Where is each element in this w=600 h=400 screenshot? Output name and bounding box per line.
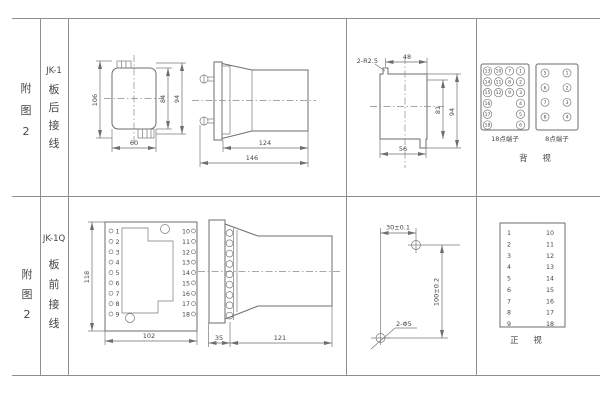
- terminal-number: 15: [182, 280, 190, 287]
- terminal-number: 16: [182, 291, 190, 298]
- rear-view-label: 背 视: [519, 153, 557, 164]
- terminal-number: 1: [519, 69, 522, 75]
- terminal-number: 11: [182, 239, 190, 246]
- figure-char: 附: [22, 267, 33, 281]
- drill-hole-bottom: [371, 328, 395, 349]
- terminal-number: 1: [116, 229, 120, 236]
- terminal-number: 3: [566, 100, 569, 106]
- terminal-number: 4: [116, 260, 120, 267]
- terminal-number: 13: [485, 69, 491, 75]
- block18-label: 18点端子: [491, 134, 519, 143]
- front-width-dim: 60: [130, 139, 138, 147]
- terminal-number: 2: [566, 85, 569, 91]
- figure-number: 2: [24, 308, 31, 321]
- terminal-number: 8: [544, 115, 547, 121]
- terminal-number: 14: [485, 79, 491, 85]
- terminal-number: 9: [507, 321, 511, 328]
- cutout-bottom-width-dim: 56: [399, 145, 407, 153]
- figure-char: 图: [22, 288, 33, 301]
- row2-figure-label: 附 图 2: [22, 267, 33, 321]
- terminal-number: 5: [544, 71, 547, 77]
- cutout-outer-height-dim: 94: [448, 108, 456, 116]
- wiring-char: 前: [49, 277, 60, 291]
- terminal-list-right-column: 10 11 12 13 14 15 16 17 18: [546, 230, 554, 328]
- terminal-block-8: 5 6 7 8 1 2 3 4: [541, 69, 571, 121]
- terminal-number: 17: [546, 310, 554, 317]
- front-height-inner-dim: 84: [159, 95, 167, 103]
- drill-hole-top: [408, 228, 460, 253]
- row2-model-label: JK-1Q 板 前 接 线: [42, 234, 66, 330]
- model-name: JK-1: [45, 66, 62, 76]
- jk1-front-view: 106 84 94 60: [91, 55, 186, 152]
- terminal-number: 8: [508, 79, 511, 85]
- wiring-char: 后: [49, 101, 60, 114]
- figure-number: 2: [23, 125, 30, 138]
- terminal-number: 3: [507, 253, 511, 260]
- terminal-number: 7: [508, 69, 511, 75]
- terminal-number: 10: [496, 69, 502, 75]
- terminal-number: 12: [546, 253, 554, 260]
- wiring-char: 板: [49, 82, 60, 96]
- block8-label: 8点端子: [545, 134, 569, 143]
- terminal-number: 7: [544, 100, 547, 106]
- technical-drawing-sheet: 附 图 2 JK-1 板 后 接 线 106: [0, 0, 600, 400]
- front-width-dim: 102: [143, 332, 155, 340]
- terminal-number: 8: [507, 310, 511, 317]
- cutout-top-width-dim: 48: [403, 53, 411, 61]
- jk1-side-view: 124 146: [192, 62, 316, 167]
- mounting-screw-bottom: [200, 117, 214, 126]
- terminal-number: 16: [485, 101, 491, 107]
- wiring-char: 线: [49, 316, 60, 330]
- side-overall-length-dim: 146: [246, 154, 258, 162]
- terminal-number: 2: [519, 79, 522, 85]
- terminal-number: 11: [546, 241, 554, 248]
- top-tab: [117, 61, 131, 68]
- terminal-number: 2: [116, 239, 120, 246]
- cutout-inner-height-dim: 81: [434, 106, 442, 114]
- terminal-number: 4: [519, 101, 522, 107]
- terminal-number: 12: [496, 90, 502, 96]
- front-view-label: 正 视: [510, 335, 548, 346]
- terminal-number: 17: [485, 112, 491, 118]
- terminal-number: 8: [116, 301, 120, 308]
- terminal-number: 12: [182, 249, 190, 256]
- corner-radius-note: 2-R2.5: [357, 57, 378, 65]
- terminal-number: 2: [507, 241, 511, 248]
- terminal-screws: [226, 228, 233, 320]
- terminal-block-18: 13 14 15 16 17 18 10 11 12 7 8 9 1 2 3 4…: [483, 67, 524, 129]
- front-right-terminals: 10 11 12 13 14 15 16 17 18: [182, 229, 196, 319]
- terminal-number: 14: [182, 270, 190, 277]
- terminal-number: 4: [507, 264, 511, 271]
- terminal-number: 11: [496, 79, 502, 85]
- terminal-number: 9: [116, 312, 120, 319]
- terminal-number: 3: [519, 90, 522, 96]
- terminal-number: 6: [507, 287, 511, 294]
- front-height-dim: 118: [83, 271, 91, 283]
- terminal-number: 13: [182, 260, 190, 267]
- terminal-number: 6: [544, 85, 547, 91]
- terminal-number: 5: [116, 270, 120, 277]
- terminal-number: 13: [546, 264, 554, 271]
- terminal-number: 4: [566, 115, 569, 121]
- figure-char: 附: [21, 81, 32, 95]
- drawing-canvas: 附 图 2 JK-1 板 后 接 线 106: [0, 0, 600, 400]
- terminal-number: 15: [546, 287, 554, 294]
- terminal-number: 5: [507, 276, 511, 283]
- wiring-char: 线: [49, 136, 60, 150]
- terminal-number: 14: [546, 276, 554, 283]
- jk1q-side-view: 35 121: [198, 220, 342, 347]
- drill-y-dim: 100±0.2: [433, 278, 441, 306]
- front-height-mid-dim: 94: [173, 95, 181, 103]
- terminal-number: 18: [546, 321, 554, 328]
- drill-x-dim: 30±0.1: [386, 224, 410, 232]
- terminal-number: 17: [182, 301, 190, 308]
- terminal-rear-view: 13 14 15 16 17 18 10 11 12 7 8 9 1 2 3 4…: [481, 64, 578, 164]
- front-left-terminals: 1 2 3 4 5 6 7 8 9: [109, 229, 120, 319]
- terminal-number: 1: [507, 230, 511, 237]
- side-flange-dim: 35: [215, 334, 223, 342]
- wiring-char: 接: [49, 119, 60, 132]
- terminal-list-front-view: 1 2 3 4 5 6 7 8 9 10 11 12 13 14 15 16 1…: [500, 223, 565, 346]
- mounting-screw-top: [200, 75, 214, 84]
- jk1q-front-view: 1 2 3 4 5 6 7 8 9 10 11 12 13 14 15 16 1…: [83, 222, 197, 345]
- panel-cutout-view: 2-R2.5 48 81 94 56: [357, 53, 461, 168]
- terminal-number: 1: [566, 71, 569, 77]
- front-height-overall-dim: 106: [91, 94, 99, 106]
- terminal-number: 18: [182, 312, 190, 319]
- terminal-number: 16: [546, 298, 554, 305]
- terminal-number: 15: [485, 90, 491, 96]
- bottom-tab: [138, 129, 154, 138]
- terminal-number: 6: [116, 280, 120, 287]
- terminal-number: 7: [116, 291, 120, 298]
- row1-model-label: JK-1 板 后 接 线: [45, 66, 62, 150]
- row1-figure-label: 附 图 2: [21, 81, 32, 138]
- wiring-char: 接: [49, 298, 60, 311]
- terminal-number: 9: [508, 90, 511, 96]
- terminal-number: 3: [116, 249, 120, 256]
- wiring-char: 板: [49, 257, 60, 271]
- terminal-list-left-column: 1 2 3 4 5 6 7 8 9: [507, 230, 511, 328]
- terminal-number: 6: [519, 123, 522, 129]
- drill-hole-note: 2-Φ5: [396, 320, 412, 328]
- drilling-plan-view: 30±0.1 100±0.2 2-Φ5: [371, 224, 460, 350]
- terminal-number: 18: [485, 123, 491, 129]
- terminal-number: 7: [507, 298, 511, 305]
- terminal-number: 10: [546, 230, 554, 237]
- terminal-number: 10: [182, 229, 190, 236]
- model-name: JK-1Q: [42, 234, 66, 244]
- side-body-length-dim: 121: [274, 334, 286, 342]
- side-body-length-dim: 124: [259, 139, 271, 147]
- terminal-number: 5: [519, 112, 522, 118]
- figure-char: 图: [21, 104, 32, 117]
